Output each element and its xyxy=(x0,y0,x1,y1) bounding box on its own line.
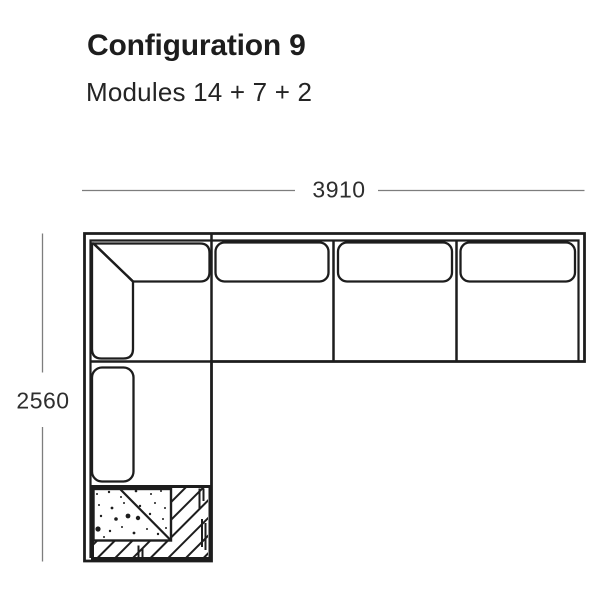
page: Configuration 9 Modules 14 + 7 + 2 xyxy=(0,0,600,600)
back-cushion-3 xyxy=(461,243,576,282)
sofa-floorplan-diagram xyxy=(0,0,600,600)
back-cushion-1 xyxy=(216,243,329,282)
width-dimension-label: 3910 xyxy=(312,177,365,204)
height-dimension-label: 2560 xyxy=(16,388,69,415)
back-cushion-2 xyxy=(338,243,452,282)
table-module xyxy=(93,487,211,559)
speckled-panel xyxy=(94,489,172,541)
sofa-plan xyxy=(85,234,585,562)
chaise-back-cushion xyxy=(92,368,134,482)
